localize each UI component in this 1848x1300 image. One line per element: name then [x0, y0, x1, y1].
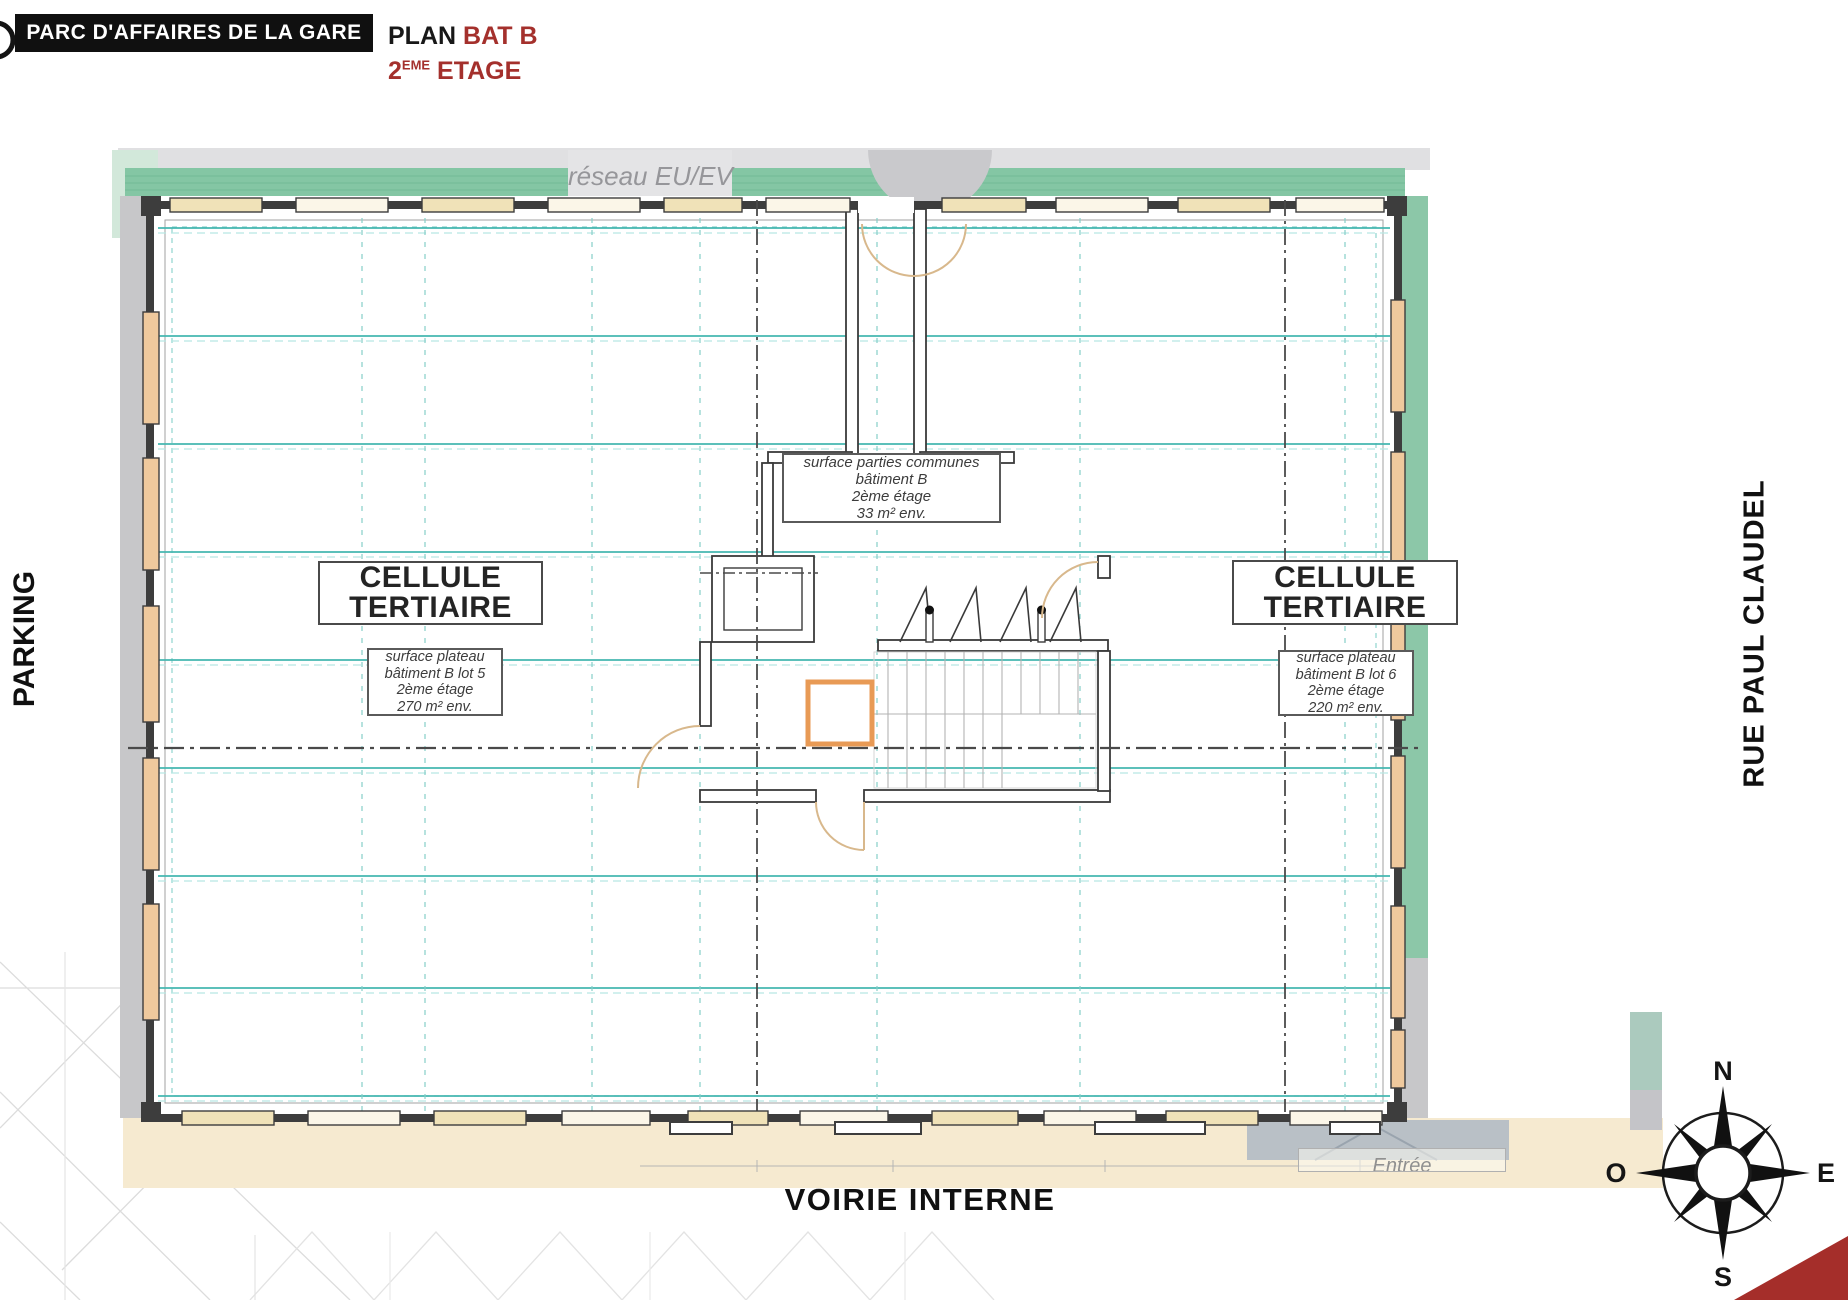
cell-left-line2: TERTIAIRE: [349, 593, 512, 623]
cell-left-surface-note: surface plateau bâtiment B lot 5 2ème ét…: [367, 648, 503, 716]
network-label: réseau EU/EV: [568, 161, 732, 192]
floor-label: 2EME ETAGE: [388, 57, 521, 86]
logo-circle: [0, 23, 13, 57]
floor-number: 2: [388, 57, 402, 85]
floor-ordinal: EME: [402, 58, 430, 73]
cell-left-line1: CELLULE: [360, 563, 502, 593]
page-corner-accent: [1734, 1236, 1848, 1300]
compass-north-label: N: [1703, 1056, 1743, 1087]
floor-word: ETAGE: [437, 57, 521, 85]
elevator-shaft: [808, 682, 872, 744]
compass-rose: [1636, 1086, 1810, 1260]
plan-building: BAT B: [463, 22, 538, 50]
project-title-bar: PARC D'AFFAIRES DE LA GARE: [15, 14, 373, 52]
compass-east-label: E: [1806, 1158, 1846, 1189]
cell-left-label: CELLULE TERTIAIRE: [318, 561, 543, 625]
cell-right-line1: CELLULE: [1274, 563, 1416, 593]
plan-label: PLAN BAT B: [388, 22, 538, 51]
cell-right-label: CELLULE TERTIAIRE: [1232, 560, 1458, 625]
top-door-opening: [858, 197, 914, 213]
street-label-parking: PARKING: [8, 557, 42, 721]
street-label-voirie-interne: VOIRIE INTERNE: [730, 1182, 1110, 1218]
cell-right-line2: TERTIAIRE: [1264, 593, 1427, 623]
building-shell: [141, 196, 1407, 1122]
compass-south-label: S: [1703, 1262, 1743, 1293]
compass-west-label: O: [1596, 1158, 1636, 1189]
floor-plan-page: PARC D'AFFAIRES DE LA GARE PLAN BAT B 2E…: [0, 0, 1848, 1300]
street-label-rue-paul-claudel: RUE PAUL CLAUDEL: [1739, 474, 1772, 794]
entrance-label: Entrée: [1298, 1148, 1506, 1172]
floor-plan-drawing: [0, 0, 1848, 1300]
common-area-note: surface parties communes bâtiment B 2ème…: [782, 453, 1001, 523]
cell-right-surface-note: surface plateau bâtiment B lot 6 2ème ét…: [1278, 650, 1414, 716]
plan-word: PLAN: [388, 22, 456, 50]
project-title: PARC D'AFFAIRES DE LA GARE: [26, 21, 361, 45]
